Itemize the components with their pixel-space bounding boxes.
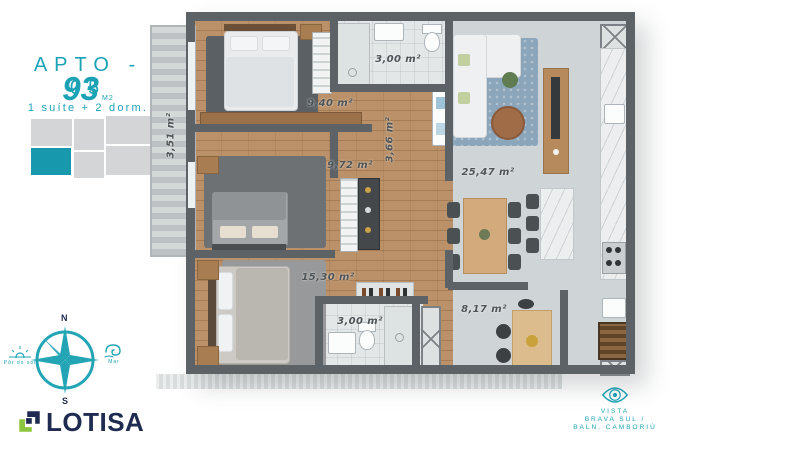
window-dorm1 <box>188 42 195 110</box>
keyplan-unit-5 <box>73 151 105 179</box>
compass-south-label: S <box>62 396 68 406</box>
label-bath-top-area: 3,00 m² <box>368 54 428 65</box>
keyplan-unit-3 <box>105 115 153 145</box>
page: APTO - 05 93M2 1 suíte + 2 dorm. N S <box>0 0 800 466</box>
apartment-area-unit: M2 <box>102 95 114 102</box>
wall-dorm1-bottom <box>195 124 372 132</box>
label-suite-area: 15,30 m² <box>296 272 360 283</box>
wall-bath-suite-left <box>315 296 323 372</box>
keyplan <box>28 112 154 180</box>
label-terrace-area: 8,17 m² <box>454 304 514 315</box>
label-living-area: 25,47 m² <box>453 167 523 178</box>
label-hall972-area: 9,72 m² <box>318 160 382 171</box>
wall-dorm2-right <box>330 132 338 178</box>
lotisa-logo-icon <box>17 409 42 434</box>
wall-terrace-kitchen <box>560 290 568 372</box>
wall-living-upper <box>445 21 453 181</box>
wall-bath-top-bottom <box>330 84 453 92</box>
compass-rose-icon <box>29 324 101 396</box>
wall-terrace-living <box>448 282 528 290</box>
floor-plan: 3,51 m² 3,00 m² 9,40 m² 3,66 m² 9,72 m² … <box>150 10 640 390</box>
wall-bath-suite-top <box>323 296 428 304</box>
label-hall366-area: 3,66 m² <box>385 114 396 166</box>
compass-star <box>31 326 99 394</box>
view-note-line3: BALN. CAMBORIÚ <box>550 424 680 432</box>
sea-wave-icon <box>103 342 125 358</box>
wall-bath-suite-right <box>412 304 420 372</box>
view-note-line2: BRAVA SUL / <box>550 416 680 424</box>
lotisa-logo-text: LOTISA <box>46 407 144 438</box>
window-dorm2 <box>188 162 195 208</box>
sea-label: Mar <box>100 359 128 365</box>
wall-dorm1-bath <box>330 21 338 88</box>
keyplan-unit-highlighted <box>30 147 72 176</box>
keyplan-unit-1 <box>30 118 73 147</box>
view-note-line1: VISTA <box>550 408 680 416</box>
wall-dorm2-suite <box>195 250 335 258</box>
compass-north-label: N <box>61 313 68 323</box>
keyplan-unit-6 <box>105 145 153 176</box>
label-balcony-area: 3,51 m² <box>166 112 177 160</box>
exterior-ledge <box>156 374 562 389</box>
keyplan-unit-2 <box>73 118 105 151</box>
label-bath-suite-area: 3,00 m² <box>328 316 392 327</box>
label-hall940-area: 9,40 m² <box>298 98 362 109</box>
